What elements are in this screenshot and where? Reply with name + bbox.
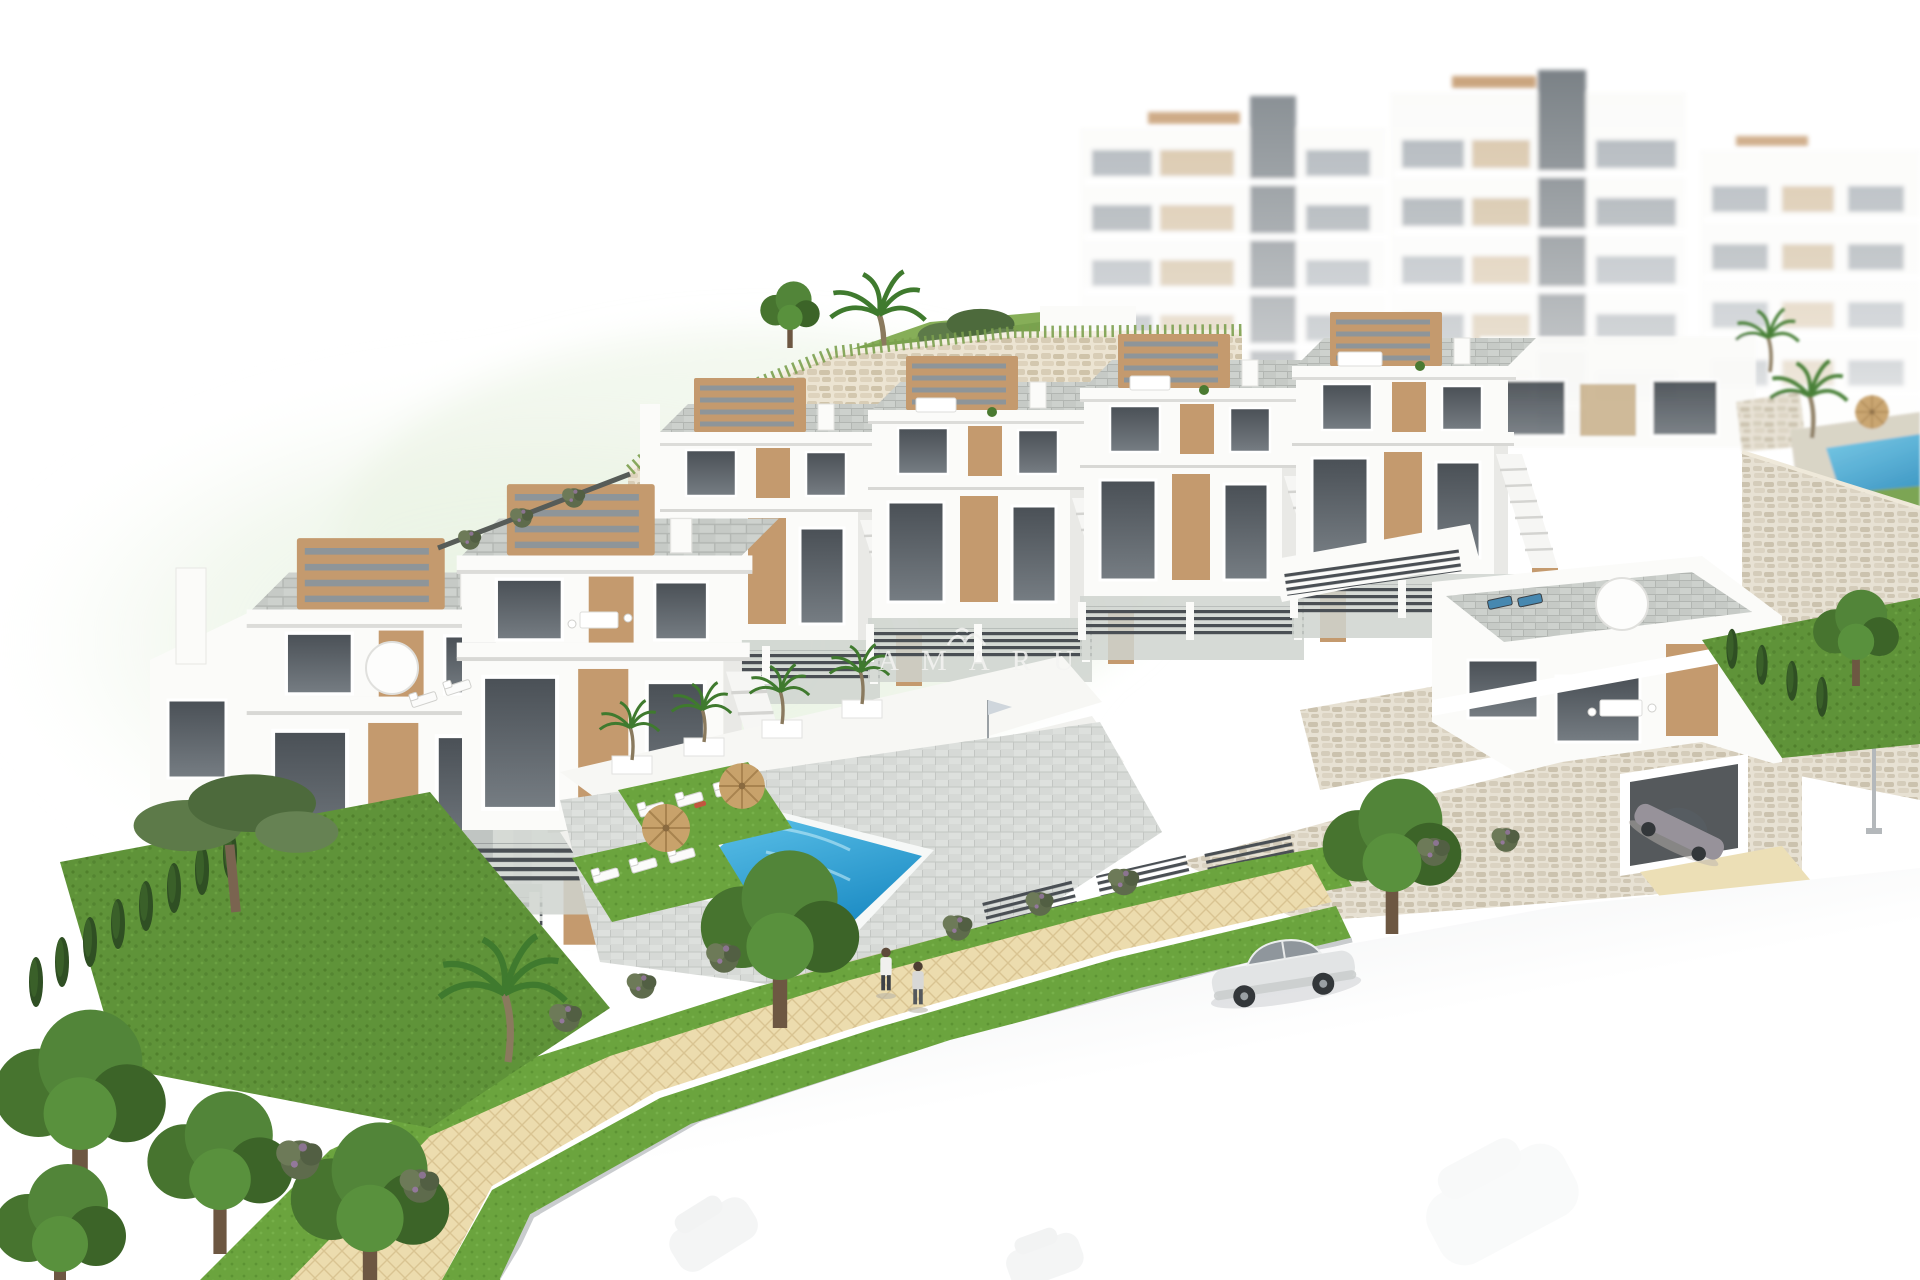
watermark-text: AMARU — [878, 645, 1096, 677]
render-canvas: AMARU — [0, 0, 1920, 1280]
chimney — [176, 568, 206, 664]
scene-svg: AMARU — [0, 0, 1920, 1280]
roof-parasol — [1596, 578, 1648, 630]
straw-umbrella — [719, 763, 765, 809]
terrace-table — [1600, 700, 1642, 716]
straw-umbrella — [642, 804, 690, 852]
